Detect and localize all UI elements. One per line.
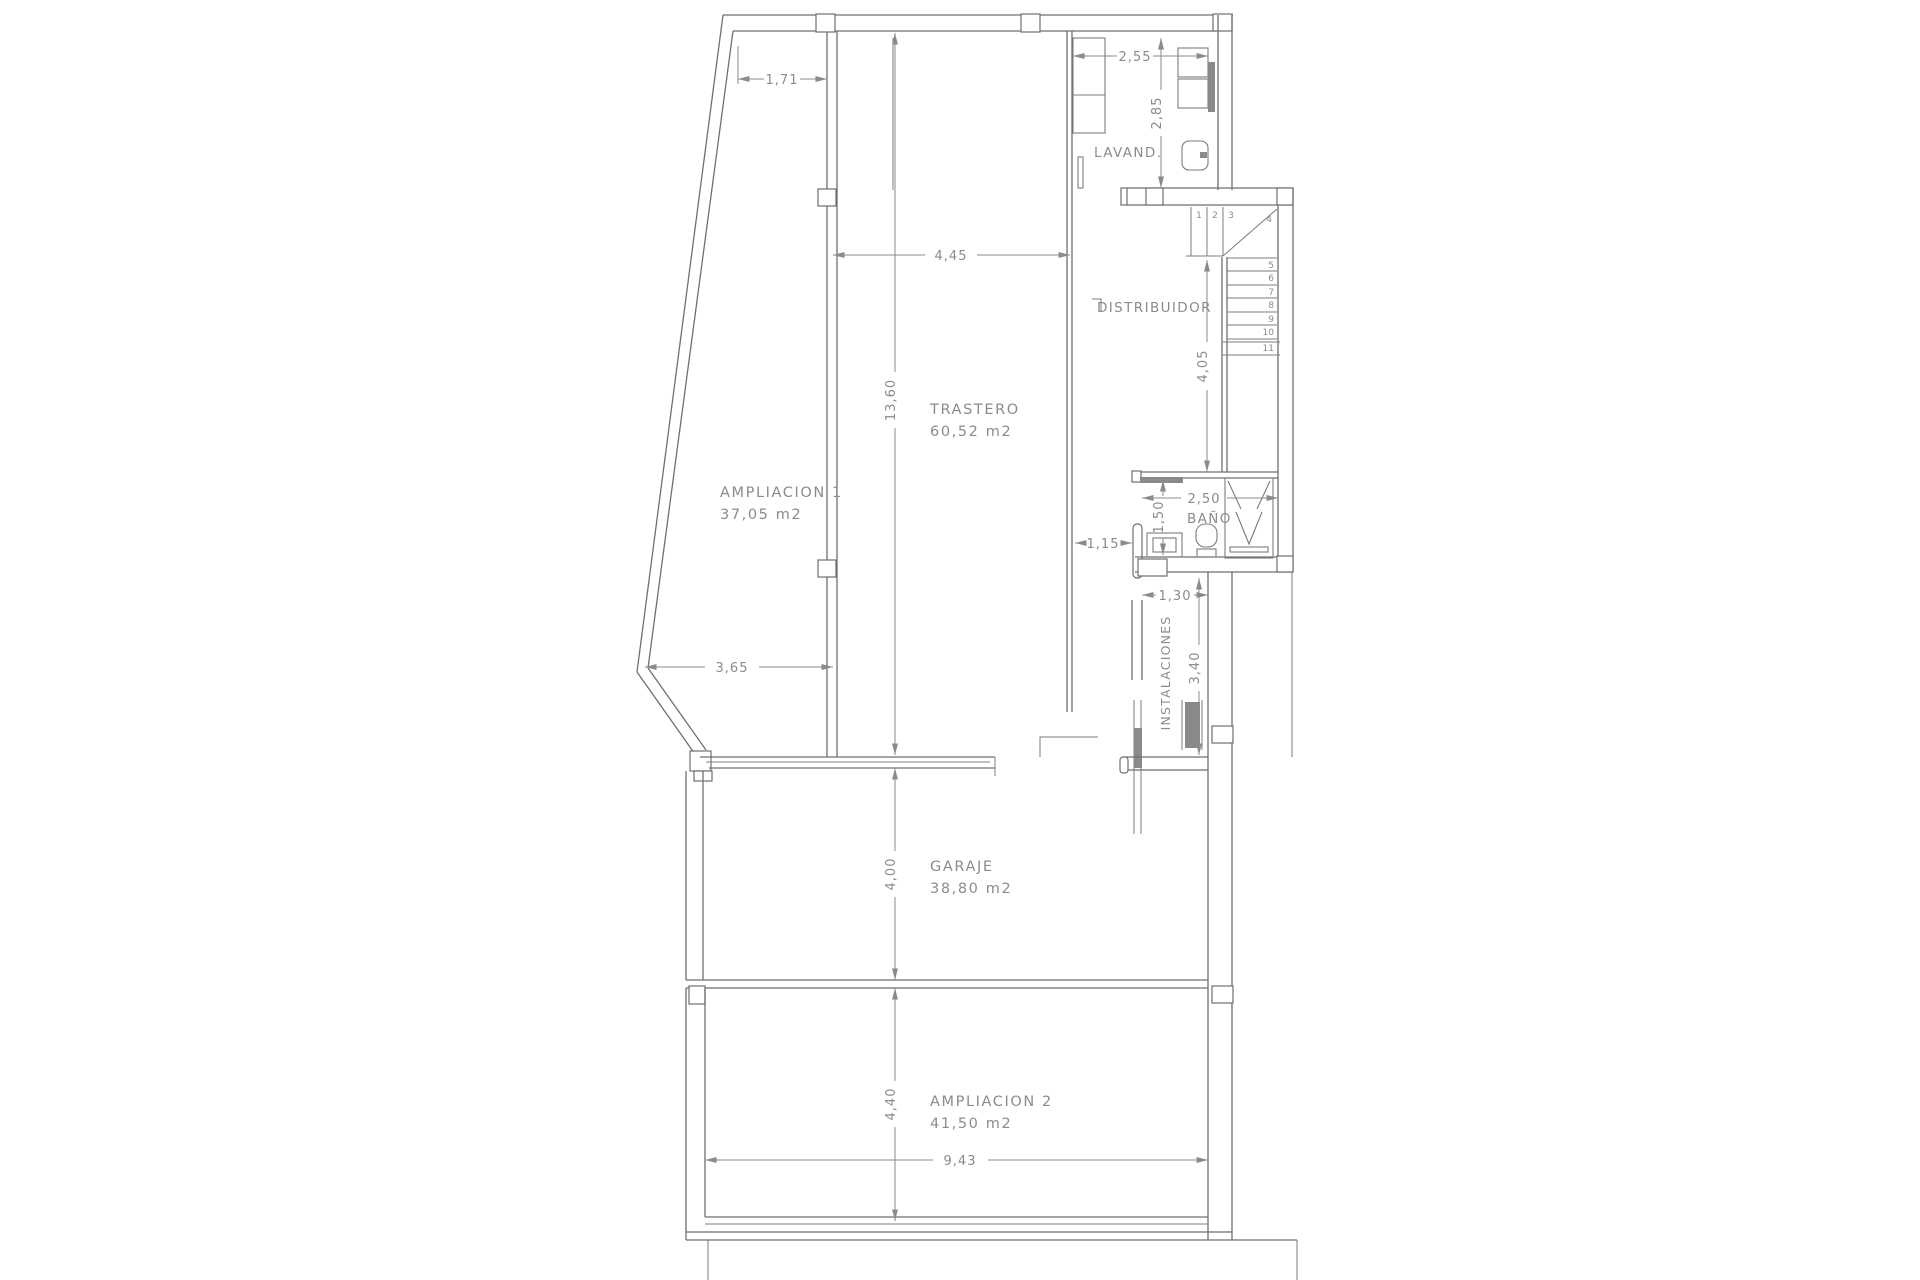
stair-step-number: 3: [1228, 211, 1234, 221]
dim-bano-width: 2,50: [1188, 492, 1221, 507]
corner-column: [690, 751, 711, 771]
shower: [1225, 478, 1273, 558]
room-label-bano: BAÑO: [1187, 510, 1232, 527]
dimensions-layer: 1,71 2,55 2,85 4,45 13,60 4,05 2,50 1,50…: [645, 33, 1278, 1221]
stair-step-number: 8: [1268, 301, 1274, 311]
dim-trastero-width: 4,45: [935, 249, 968, 264]
dim-lavanderia-width: 2,55: [1119, 50, 1152, 65]
dim-ampliacion2-width: 9,43: [944, 1154, 977, 1169]
threshold-line: [1040, 737, 1098, 757]
closet: [1073, 38, 1105, 133]
stair-step-number: 10: [1263, 328, 1275, 338]
room-labels-layer: LAVAND. DISTRIBUIDOR TRASTERO 60,52 m2 A…: [720, 145, 1232, 1132]
stair-step-number: 1: [1196, 211, 1202, 221]
dim-paso-bano: 1,15: [1087, 537, 1120, 552]
staircase: 1 2 3 4 5 6 7 8 9 10 11: [1186, 207, 1280, 472]
stair-step-number: 2: [1212, 211, 1218, 221]
room-area-ampliacion1: 37,05 m2: [720, 507, 802, 523]
washer: [1178, 48, 1208, 77]
room-label-trastero: TRASTERO: [929, 402, 1020, 418]
walls-layer: [637, 14, 1297, 1280]
floor-plan-drawing: 1 2 3 4 5 6 7 8 9 10 11 1,71 2,55 2,85 4…: [0, 0, 1920, 1280]
dim-lavanderia-depth: 2,85: [1150, 97, 1165, 130]
room-label-lavanderia: LAVAND.: [1094, 145, 1162, 161]
stair-step-number: 5: [1268, 261, 1274, 271]
floor-plan-canvas: 1 2 3 4 5 6 7 8 9 10 11 1,71 2,55 2,85 4…: [0, 0, 1920, 1280]
stair-step-number: 7: [1268, 288, 1274, 298]
stair-step-number: 4: [1266, 215, 1272, 225]
dim-ampliacion2-depth: 4,40: [884, 1088, 899, 1121]
dim-instalaciones-height: 3,40: [1188, 652, 1203, 685]
dryer: [1178, 79, 1208, 108]
room-label-garaje: GARAJE: [930, 859, 994, 875]
dim-stair-shaft: 4,05: [1196, 350, 1211, 383]
bath-sink: [1147, 533, 1182, 557]
room-area-garaje: 38,80 m2: [930, 881, 1012, 897]
stair-step-number: 11: [1263, 344, 1274, 354]
dim-bano-depth: 1,50: [1152, 501, 1167, 534]
dim-instalaciones-width: 1,30: [1159, 589, 1192, 604]
bath-lintel: [1140, 477, 1183, 483]
room-area-ampliacion2: 41,50 m2: [930, 1116, 1012, 1132]
toilet: [1196, 524, 1217, 547]
room-label-instalaciones: INSTALACIONES: [1158, 616, 1173, 731]
duct-hatch: [1208, 62, 1215, 112]
room-label-ampliacion1: AMPLIACION 1: [720, 485, 843, 501]
dim-ampliacion1-top: 1,71: [766, 73, 799, 88]
room-label-distribuidor: DISTRIBUIDOR: [1097, 300, 1212, 316]
dim-garaje-depth: 4,00: [884, 858, 899, 891]
stair-step-number: 9: [1268, 315, 1274, 325]
room-label-ampliacion2: AMPLIACION 2: [930, 1094, 1053, 1110]
board: [1078, 157, 1083, 188]
door-jamb: [1121, 188, 1127, 205]
dim-trastero-length: 13,60: [884, 379, 899, 421]
dim-ampliacion1-bottom: 3,65: [716, 661, 749, 676]
room-area-trastero: 60,52 m2: [930, 424, 1012, 440]
wall-hatch: [1134, 728, 1142, 768]
stair-step-number: 6: [1268, 274, 1274, 284]
